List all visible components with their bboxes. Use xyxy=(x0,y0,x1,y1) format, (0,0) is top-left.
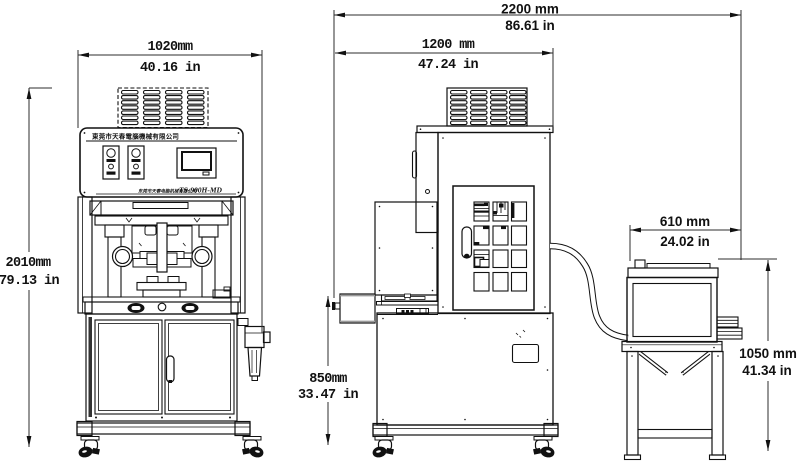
dim-outfeed-width-mm: 610 mm xyxy=(660,214,710,229)
cabinet-door-right[interactable] xyxy=(165,320,234,414)
front-display-screen[interactable] xyxy=(177,148,216,178)
door-window xyxy=(493,250,508,268)
dim-outfeed-width-in: 24.02 in xyxy=(660,234,710,249)
model-label: TS-900H-MD xyxy=(179,186,223,195)
dim-table-height: 850mm 33.47 in xyxy=(298,296,359,445)
cabinet-door-left[interactable] xyxy=(95,320,162,414)
side-conveyor xyxy=(377,294,439,315)
outfeed-box xyxy=(627,278,717,343)
outfeed-connectors xyxy=(717,317,742,339)
access-panel xyxy=(513,345,539,363)
side-view xyxy=(332,88,628,459)
front-control-panel: 東莞市天春電腦機械有限公司 东莞市天春电脑机械有限公司 xyxy=(80,128,243,197)
caster-wheel xyxy=(371,437,394,459)
side-infeed-box xyxy=(332,294,375,323)
hose xyxy=(550,246,628,338)
start-button-right[interactable] xyxy=(182,303,199,313)
front-cabinet xyxy=(86,314,237,421)
dim-front-width: 1020mm 40.16 in xyxy=(78,40,262,333)
front-switch-right[interactable] xyxy=(128,146,144,179)
dim-front-width-in: 40.16 in xyxy=(140,61,201,76)
caster-wheel xyxy=(533,437,556,459)
dim-outfeed-height-mm: 1050 mm xyxy=(739,346,797,361)
door-window xyxy=(493,273,508,292)
front-press-section xyxy=(78,197,245,314)
dim-front-height-mm: 2010mm xyxy=(5,256,51,271)
outfeed-stand xyxy=(622,342,726,460)
table-center-button[interactable] xyxy=(158,303,166,311)
dim-side-total-in: 86.61 in xyxy=(505,18,555,33)
dim-side-total-mm: 2200 mm xyxy=(501,2,559,17)
dim-table-height-mm: 850mm xyxy=(309,372,347,387)
caster-wheel xyxy=(77,437,100,459)
door-window xyxy=(474,273,489,292)
front-base xyxy=(77,422,265,459)
dim-outfeed-width: 610 mm 24.02 in xyxy=(630,214,741,261)
side-vent-grille-icon xyxy=(447,88,527,126)
door-handle[interactable] xyxy=(462,227,472,258)
dim-side-body-in: 47.24 in xyxy=(418,58,479,73)
side-lower-body xyxy=(377,313,553,425)
air-filter-regulator xyxy=(238,319,270,381)
side-door[interactable] xyxy=(453,186,534,310)
door-window xyxy=(512,250,527,268)
cabinet-handle[interactable] xyxy=(167,356,175,383)
dim-side-body: 1200 mm 47.24 in xyxy=(335,38,553,127)
side-base xyxy=(371,424,558,459)
front-vent-grille-icon xyxy=(118,88,208,128)
outfeed-table xyxy=(622,260,742,460)
dim-front-width-mm: 1020mm xyxy=(147,40,193,55)
door-window xyxy=(512,226,527,245)
drawing-canvas: 東莞市天春電腦機械有限公司 东莞市天春电脑机械有限公司 xyxy=(0,0,800,465)
technical-drawing: 東莞市天春電腦機械有限公司 东莞市天春电脑机械有限公司 xyxy=(0,0,800,465)
dim-side-body-mm: 1200 mm xyxy=(422,38,475,53)
dim-outfeed-height-in: 41.34 in xyxy=(742,363,792,378)
dim-table-height-in: 33.47 in xyxy=(298,388,359,403)
side-left-panel xyxy=(375,202,437,295)
start-button-left[interactable] xyxy=(128,303,145,313)
door-window xyxy=(512,273,527,292)
side-body xyxy=(413,126,554,314)
front-switch-left[interactable] xyxy=(103,146,119,179)
front-view: 東莞市天春電腦機械有限公司 东莞市天春电脑机械有限公司 xyxy=(77,88,270,459)
company-name-label: 東莞市天春電腦機械有限公司 xyxy=(92,132,179,141)
dim-outfeed-height: 1050 mm 41.34 in xyxy=(718,259,797,451)
caster-wheel xyxy=(242,437,265,459)
dim-front-height-in: 79.13 in xyxy=(0,274,60,289)
dim-front-height: 2010mm 79.13 in xyxy=(0,88,60,447)
dim-side-total: 2200 mm 86.61 in xyxy=(334,2,741,299)
